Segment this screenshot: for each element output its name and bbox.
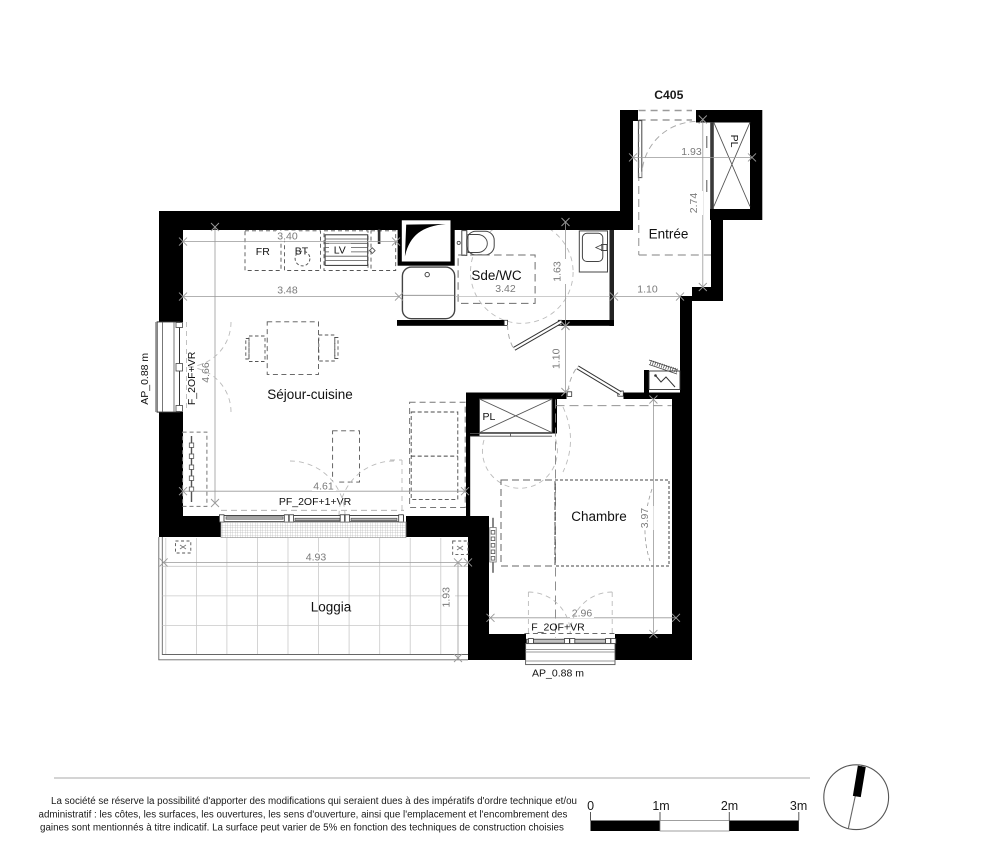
svg-text:Sde/WC: Sde/WC — [471, 268, 522, 283]
svg-text:1.10: 1.10 — [551, 348, 563, 369]
svg-text:FR: FR — [256, 246, 270, 258]
svg-text:3.48: 3.48 — [277, 284, 298, 296]
svg-text:AP_0.88 m: AP_0.88 m — [139, 353, 151, 405]
svg-text:Entrée: Entrée — [649, 227, 689, 242]
svg-text:3.40: 3.40 — [277, 230, 298, 242]
svg-text:4.66: 4.66 — [200, 362, 212, 383]
svg-text:4.61: 4.61 — [313, 481, 334, 493]
svg-text:C405: C405 — [654, 88, 683, 102]
svg-text:2m: 2m — [721, 799, 738, 813]
svg-text:2.96: 2.96 — [572, 607, 593, 619]
svg-text:AP_0.88 m: AP_0.88 m — [532, 668, 584, 680]
svg-text:PL: PL — [728, 135, 740, 148]
svg-text:4.93: 4.93 — [306, 551, 327, 563]
svg-text:Loggia: Loggia — [311, 600, 352, 615]
svg-text:gaines sont mentionnés à titre: gaines sont mentionnés à titre indicatif… — [40, 823, 564, 834]
svg-text:3.42: 3.42 — [495, 283, 516, 295]
svg-text:1m: 1m — [652, 799, 669, 813]
svg-text:3.97: 3.97 — [639, 508, 651, 529]
svg-text:La société se réserve la possi: La société se réserve la possibilité d'a… — [51, 796, 577, 807]
svg-text:Séjour-cuisine: Séjour-cuisine — [267, 387, 353, 402]
svg-text:1.93: 1.93 — [441, 587, 453, 608]
svg-text:Chambre: Chambre — [571, 509, 627, 524]
svg-text:2.74: 2.74 — [688, 193, 700, 214]
svg-text:1.93: 1.93 — [681, 146, 702, 158]
svg-text:1.10: 1.10 — [637, 283, 658, 295]
svg-text:3m: 3m — [790, 799, 807, 813]
svg-text:administratif : les côtes, les: administratif : les côtes, les surfaces,… — [39, 809, 568, 820]
svg-text:1.63: 1.63 — [551, 261, 563, 282]
svg-text:LV: LV — [334, 245, 346, 257]
svg-text:F_2OF+VR: F_2OF+VR — [186, 351, 198, 405]
svg-text:PF_2OF+1+VR: PF_2OF+1+VR — [279, 496, 352, 508]
svg-text:PL: PL — [483, 411, 496, 423]
svg-text:0: 0 — [587, 799, 594, 813]
svg-text:F_2OF+VR: F_2OF+VR — [531, 622, 585, 634]
